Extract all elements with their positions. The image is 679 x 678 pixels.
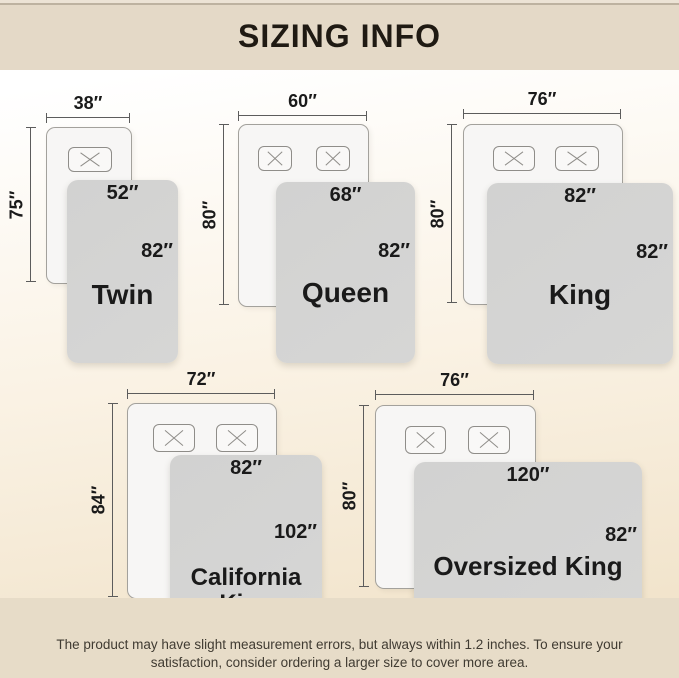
pillow	[216, 424, 258, 452]
dimension-line	[223, 124, 224, 305]
dimension-tick	[219, 124, 229, 125]
dimension-line	[375, 394, 534, 395]
dimension-tick	[26, 127, 36, 128]
oversized-king-length-dimension: 80″	[363, 405, 364, 587]
footer-note-line2: satisfaction, consider ordering a larger…	[0, 655, 679, 670]
twin-width-dimension: 38″	[46, 117, 130, 118]
queen-width-dimension: 60″	[238, 115, 367, 116]
oversized-king-blanket: 120″ 82″ Oversized King	[414, 462, 642, 609]
footer-note-line1: The product may have slight measurement …	[0, 637, 679, 652]
dimension-tick	[533, 390, 534, 400]
oversized-king-width-dimension: 76″	[375, 394, 534, 395]
king-width-dimension: 76″	[463, 113, 621, 114]
twin-length-dimension: 75″	[30, 127, 31, 282]
king-size-name: King	[487, 280, 673, 310]
dimension-tick	[127, 389, 128, 399]
pillow-x-icon	[217, 425, 257, 451]
twin-mattress-width-label: 38″	[46, 93, 130, 114]
pillow-x-icon	[154, 425, 194, 451]
dimension-line	[112, 403, 113, 597]
pillow	[493, 146, 535, 171]
dimension-line	[463, 113, 621, 114]
pillow-x-icon	[469, 427, 509, 453]
dimension-tick	[375, 390, 376, 400]
pillow	[258, 146, 292, 171]
oversized-king-blanket-width-label: 120″	[414, 464, 642, 486]
pillow-x-icon	[317, 147, 349, 170]
pillow	[468, 426, 510, 454]
dimension-line	[238, 115, 367, 116]
dimension-tick	[447, 124, 457, 125]
king-mattress-width-label: 76″	[463, 89, 621, 110]
pillow	[68, 147, 112, 172]
king-length-dimension: 80″	[451, 124, 452, 303]
dimension-tick	[463, 109, 464, 119]
dimension-tick	[46, 113, 47, 123]
dimension-line	[127, 393, 275, 394]
queen-size-name: Queen	[276, 278, 415, 308]
twin-size-name: Twin	[67, 280, 178, 310]
dimension-tick	[447, 302, 457, 303]
pillow-x-icon	[406, 427, 445, 453]
queen-mattress-length-label: 80″	[200, 200, 221, 229]
dimension-tick	[129, 113, 130, 123]
dimension-tick	[108, 596, 118, 597]
california-king-length-dimension: 84″	[112, 403, 113, 597]
queen-length-dimension: 80″	[223, 124, 224, 305]
twin-blanket-length-label: 82″	[141, 240, 173, 262]
dimension-line	[46, 117, 130, 118]
dimension-tick	[219, 304, 229, 305]
oversized-king-size-name: Oversized King	[433, 552, 623, 580]
queen-blanket-width-label: 68″	[276, 184, 415, 206]
page-title: SIZING INFO	[0, 0, 679, 70]
dimension-tick	[366, 111, 367, 121]
pillow	[555, 146, 599, 171]
dimension-line	[30, 127, 31, 282]
dimension-tick	[620, 109, 621, 119]
twin-blanket-width-label: 52″	[67, 182, 178, 204]
queen-mattress-width-label: 60″	[238, 91, 367, 112]
king-blanket-length-label: 82″	[636, 241, 668, 263]
pillow-x-icon	[259, 147, 291, 170]
pillow	[316, 146, 350, 171]
california-king-mattress-length-label: 84″	[89, 486, 110, 515]
oversized-king-mattress-length-label: 80″	[340, 482, 361, 511]
pillow-x-icon	[494, 147, 534, 170]
queen-blanket-length-label: 82″	[378, 240, 410, 262]
dimension-line	[451, 124, 452, 303]
dimension-line	[363, 405, 364, 587]
california-king-blanket-width-label: 82″	[170, 457, 322, 479]
california-king-width-dimension: 72″	[127, 393, 275, 394]
pillow	[405, 426, 446, 454]
king-blanket-width-label: 82″	[487, 185, 673, 207]
dimension-tick	[26, 281, 36, 282]
king-blanket: 82″ 82″ King	[487, 183, 673, 364]
dimension-tick	[274, 389, 275, 399]
dimension-tick	[359, 586, 369, 587]
dimension-tick	[238, 111, 239, 121]
pillow-x-icon	[556, 147, 598, 170]
oversized-king-blanket-length-label: 82″	[605, 524, 637, 546]
dimension-tick	[108, 403, 118, 404]
twin-blanket: 52″ 82″ Twin	[67, 180, 178, 363]
california-king-mattress-width-label: 72″	[127, 369, 275, 390]
twin-mattress-length-label: 75″	[7, 190, 28, 219]
dimension-tick	[359, 405, 369, 406]
king-mattress-length-label: 80″	[428, 199, 449, 228]
california-king-blanket-length-label: 102″	[274, 521, 317, 543]
queen-blanket: 68″ 82″ Queen	[276, 182, 415, 363]
oversized-king-mattress-width-label: 76″	[375, 370, 534, 391]
pillow	[153, 424, 195, 452]
pillow-x-icon	[69, 148, 111, 171]
sizing-info-graphic: SIZING INFO 38″ 75″ 52″ 82″ Twin	[0, 0, 679, 678]
